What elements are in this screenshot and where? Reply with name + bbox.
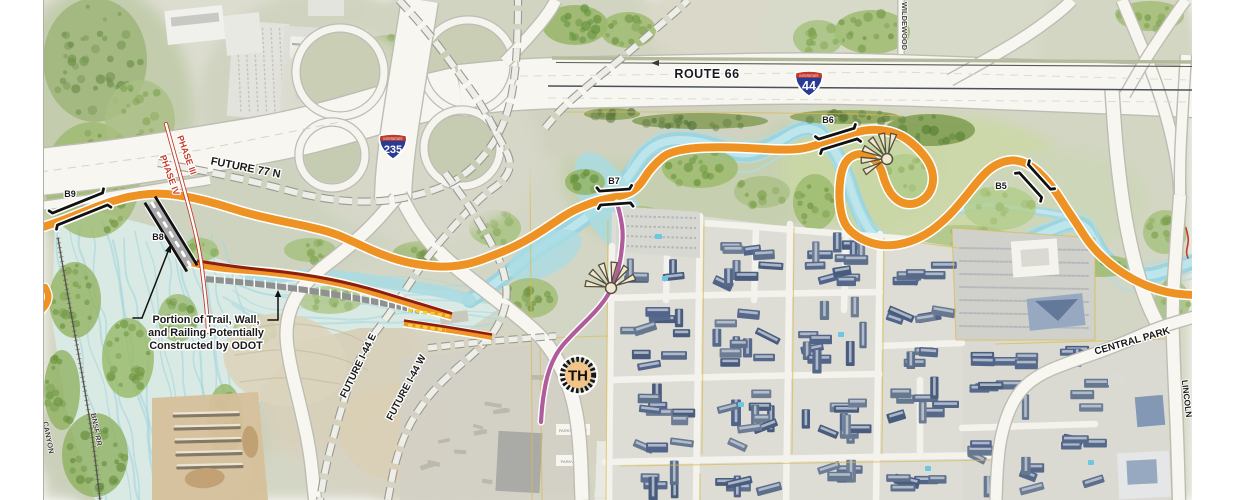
- svg-text:B6: B6: [822, 115, 834, 125]
- svg-text:B7: B7: [608, 176, 620, 186]
- svg-text:ROUTE 66: ROUTE 66: [674, 67, 739, 81]
- svg-text:44: 44: [802, 79, 816, 93]
- svg-text:INTERSTATE: INTERSTATE: [799, 74, 818, 78]
- svg-text:235: 235: [384, 144, 402, 156]
- svg-text:Portion of Trail, Wall,: Portion of Trail, Wall,: [153, 314, 260, 326]
- svg-text:WILDEWOOD: WILDEWOOD: [900, 2, 909, 51]
- svg-text:and Railing Potentially: and Railing Potentially: [148, 327, 264, 339]
- svg-text:B9: B9: [64, 189, 76, 199]
- svg-text:B8: B8: [152, 232, 164, 242]
- svg-text:INTERSTATE: INTERSTATE: [383, 137, 402, 141]
- svg-text:B5: B5: [995, 181, 1007, 191]
- svg-text:TH: TH: [568, 368, 588, 385]
- svg-text:Constructed by ODOT: Constructed by ODOT: [149, 340, 263, 352]
